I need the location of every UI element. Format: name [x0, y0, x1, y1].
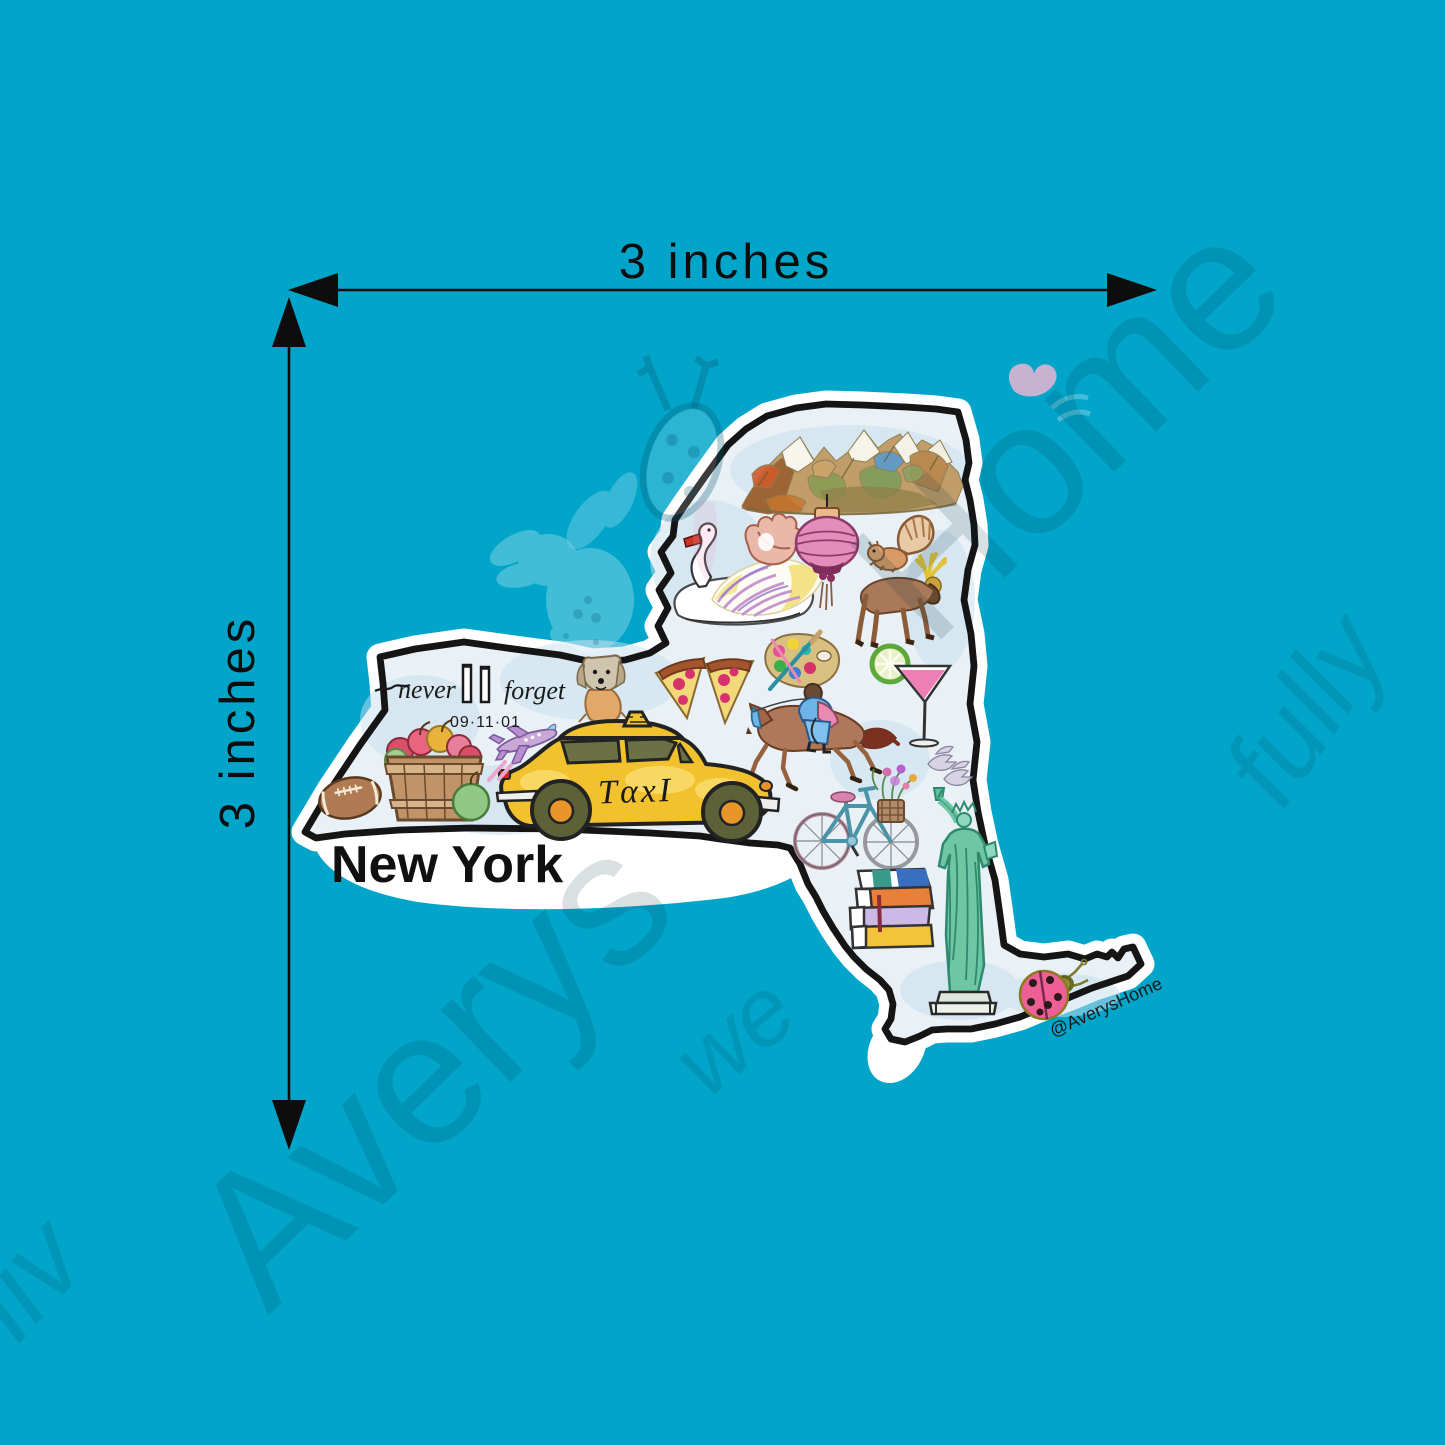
svg-text:forget: forget	[504, 676, 566, 705]
svg-text:3 inches: 3 inches	[619, 235, 834, 289]
svg-text:09·11·01: 09·11·01	[450, 714, 521, 731]
svg-text:3 inches: 3 inches	[211, 615, 265, 830]
svg-text:TαxI: TαxI	[597, 772, 673, 812]
svg-text:never: never	[398, 675, 457, 704]
